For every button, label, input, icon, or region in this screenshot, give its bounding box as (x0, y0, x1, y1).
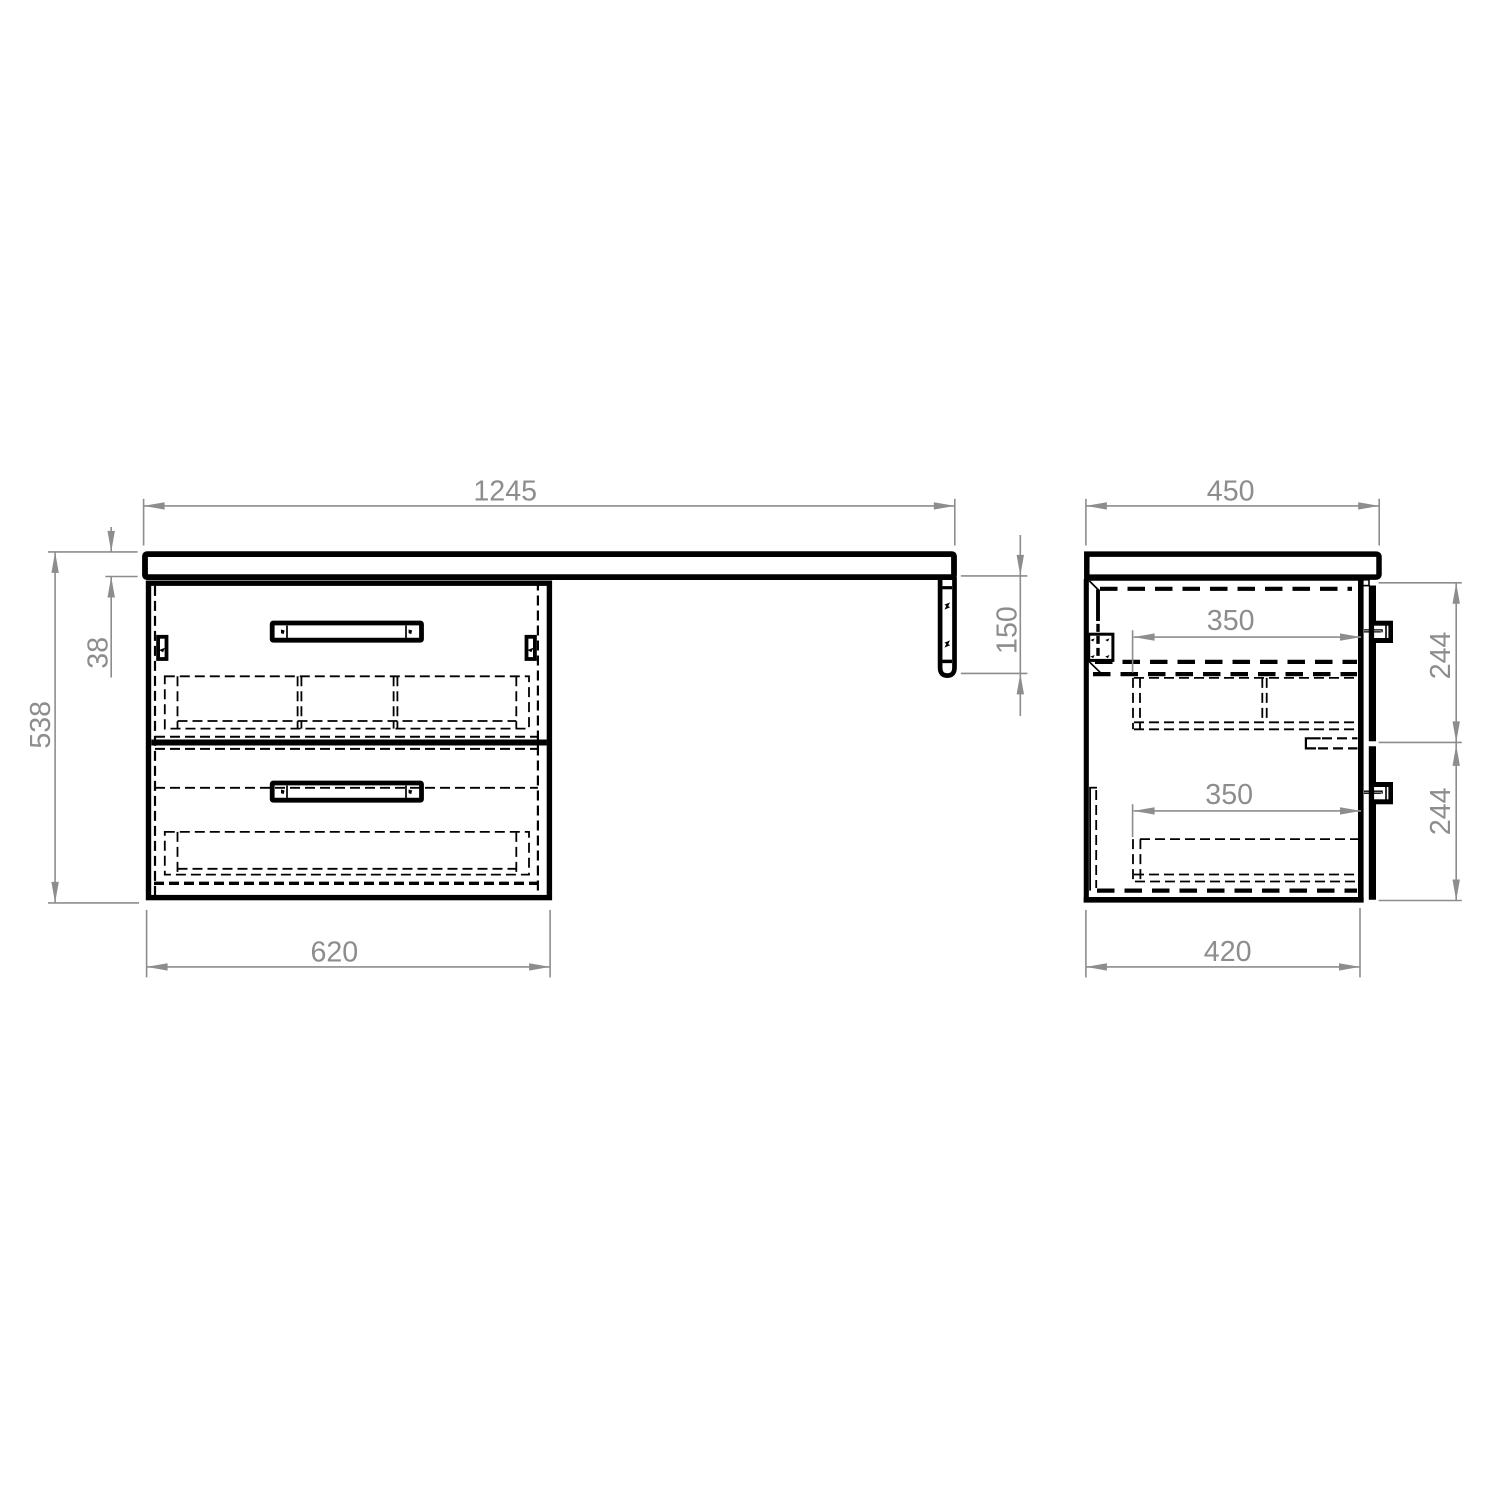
svg-text:420: 420 (1204, 936, 1252, 968)
svg-text:350: 350 (1207, 605, 1255, 637)
svg-text:150: 150 (991, 606, 1023, 654)
svg-text:538: 538 (25, 701, 57, 749)
svg-text:350: 350 (1205, 779, 1253, 811)
svg-text:244: 244 (1425, 787, 1457, 835)
svg-text:38: 38 (83, 637, 115, 669)
svg-text:620: 620 (311, 937, 359, 969)
svg-text:450: 450 (1207, 476, 1255, 508)
svg-text:1245: 1245 (473, 476, 537, 508)
svg-text:244: 244 (1425, 631, 1457, 679)
